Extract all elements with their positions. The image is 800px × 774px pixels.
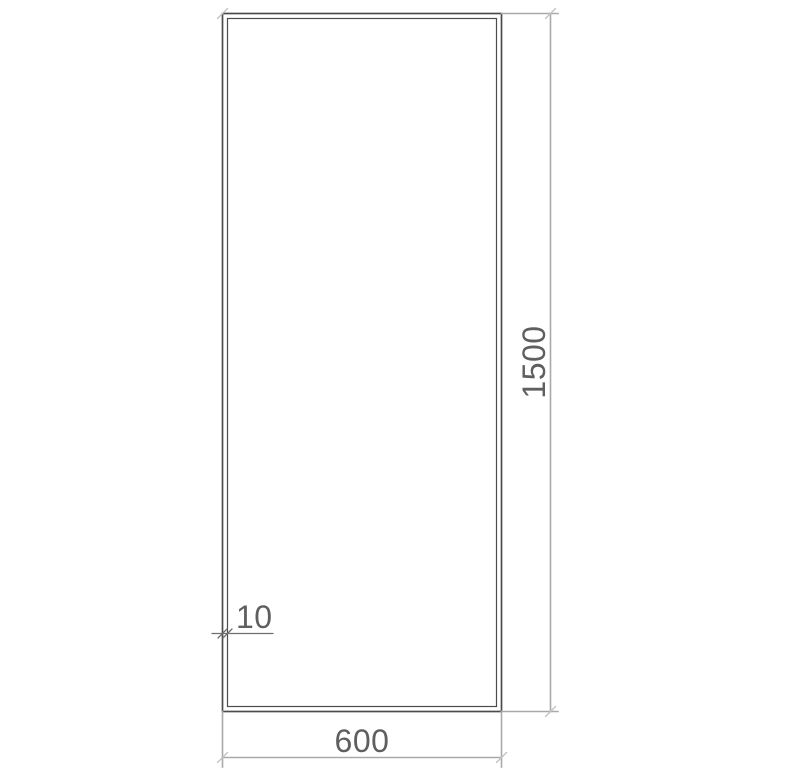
dimension-ticks-group <box>218 9 556 763</box>
dimension-lines-group <box>223 14 559 768</box>
drawing-canvas: 600 1500 10 <box>0 0 800 774</box>
width-dimension-label: 600 <box>335 723 390 759</box>
technical-drawing: 600 1500 10 <box>0 0 800 774</box>
edge-thickness-label: 10 <box>236 599 273 635</box>
height-dimension-label: 1500 <box>516 325 552 398</box>
